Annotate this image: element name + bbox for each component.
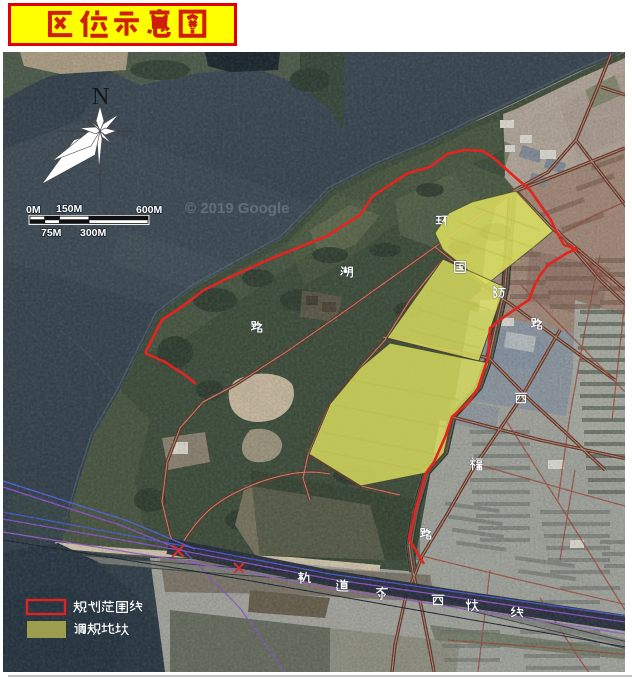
svg-text:75M: 75M	[41, 227, 62, 239]
svg-text:0M: 0M	[26, 204, 41, 216]
svg-text:600M: 600M	[136, 204, 163, 216]
svg-text:N: N	[92, 84, 109, 110]
svg-text:300M: 300M	[80, 227, 107, 239]
svg-text:© 2019 Google: © 2019 Google	[185, 200, 289, 217]
svg-text:150M: 150M	[56, 203, 83, 215]
